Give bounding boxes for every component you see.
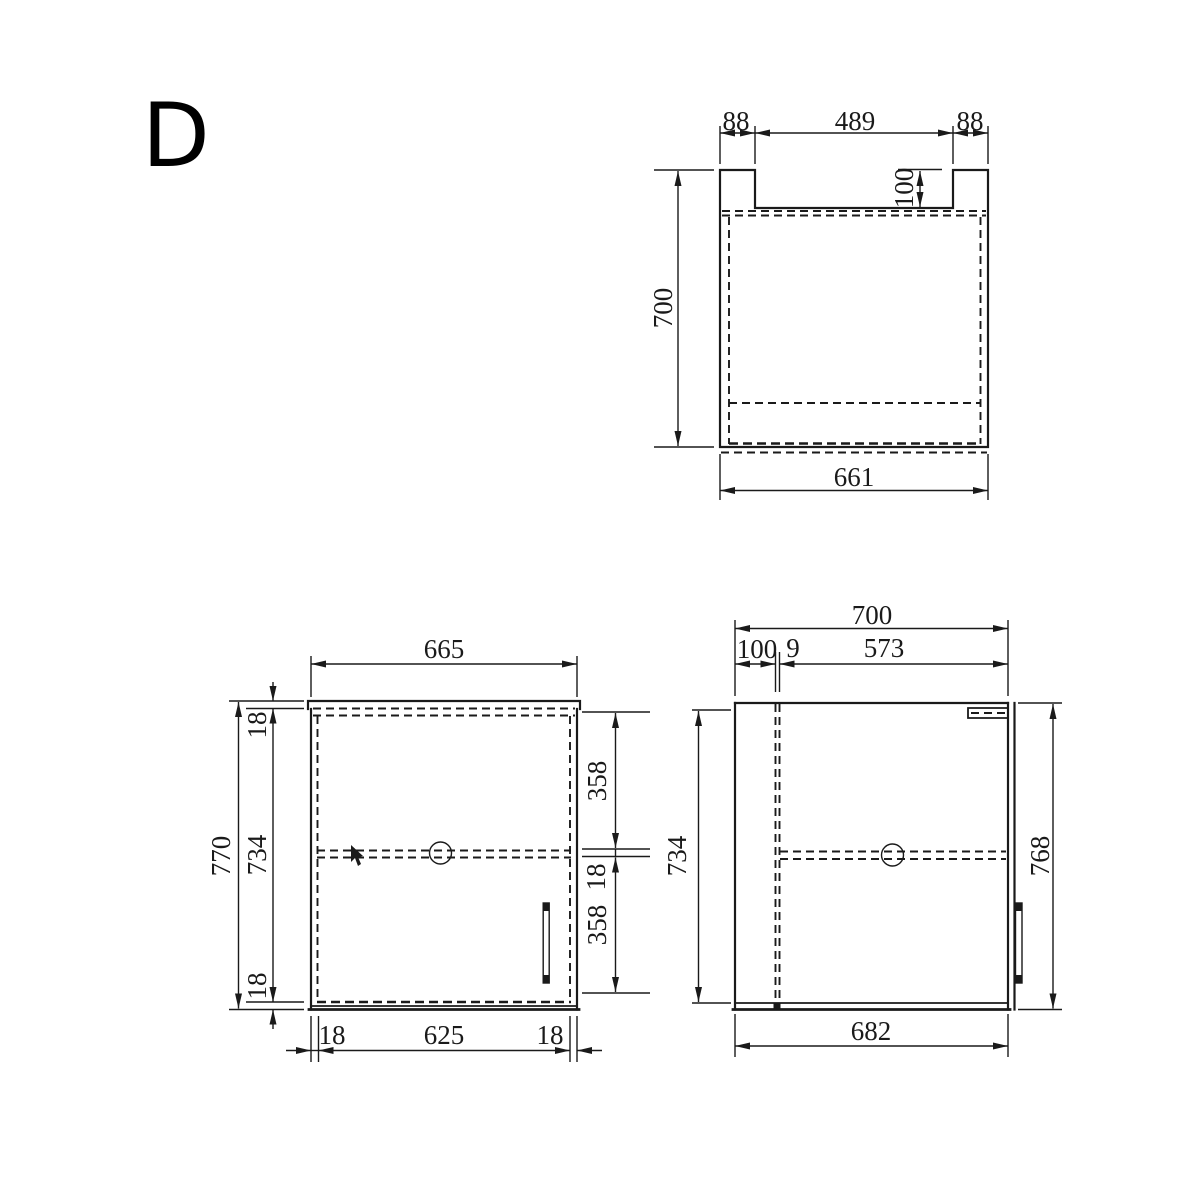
top-view-hidden-lines [721,211,987,453]
dim-front-view-upper-section: 358 [582,761,612,802]
dim-side-view-back-panel: 9 [786,633,800,663]
dim-top-view-side-right: 88 [957,106,984,136]
side-view: 700 100 9 573 734 768 682 [662,600,1062,1057]
dim-front-view-left-panel: 18 [319,1020,346,1050]
dim-front-view-top-panel: 18 [242,712,272,739]
dim-side-view-inner-depth: 573 [864,633,905,663]
cabinet-drawing-svg: D 88 489 88 [0,0,1200,1200]
dim-front-view-bottom-panel: 18 [242,973,272,1000]
dim-front-view-lower-section: 358 [582,905,612,946]
page-title-letter: D [142,84,210,187]
dim-front-view-overall-width: 665 [424,634,465,664]
shelf-pin-circle-front [430,842,452,864]
front-view-dimensions: 665 770 18 734 18 358 18 358 [206,634,650,1062]
dim-top-view-back-rail-depth: 100 [889,168,919,209]
dim-front-view-inner-width: 625 [424,1020,465,1050]
top-view: 88 489 88 100 700 661 [648,106,988,500]
dim-front-view-shelf-thickness: 18 [581,864,611,891]
side-view-hidden-lines [774,704,1007,1009]
mouse-cursor-icon [351,845,363,866]
dim-top-view-side-left: 88 [723,106,750,136]
front-view: 665 770 18 734 18 358 18 358 [206,634,650,1062]
door-handle-side [1016,903,1023,983]
dim-front-view-right-panel: 18 [537,1020,564,1050]
top-view-dimensions: 88 489 88 100 700 661 [648,106,988,500]
dim-side-view-back-clearance: 100 [737,634,778,664]
front-view-outline [308,701,580,1010]
dim-side-view-bottom-depth: 682 [851,1016,892,1046]
shelf-pin-circle-side [882,844,904,866]
dim-top-view-front-width: 661 [834,462,875,492]
dim-front-view-inner-height: 734 [242,834,272,875]
side-view-dimensions: 700 100 9 573 734 768 682 [662,600,1062,1057]
dim-side-view-overall-height: 768 [1025,836,1055,877]
dim-top-view-back-opening: 489 [835,106,876,136]
dim-side-view-inner-height: 734 [662,835,692,876]
dim-top-view-overall-depth: 700 [648,288,678,329]
door-handle-front [543,903,549,983]
dim-front-view-overall-height: 770 [206,836,236,877]
technical-drawing-page: D 88 489 88 [0,0,1200,1200]
dim-side-view-overall-depth: 700 [852,600,893,630]
